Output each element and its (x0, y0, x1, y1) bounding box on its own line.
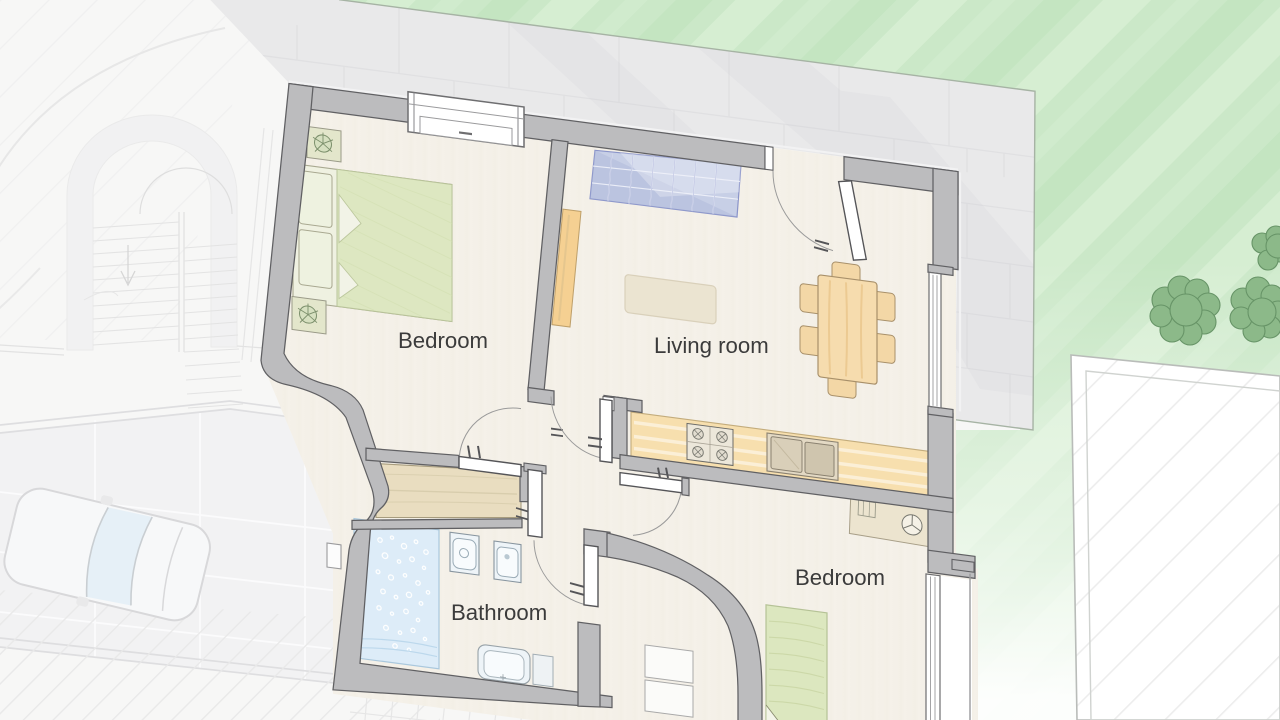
svg-text:Bedroom: Bedroom (795, 565, 885, 590)
svg-text:Bedroom: Bedroom (398, 328, 488, 353)
svg-text:Bathroom: Bathroom (451, 600, 547, 625)
svg-text:Living room: Living room (654, 333, 769, 358)
